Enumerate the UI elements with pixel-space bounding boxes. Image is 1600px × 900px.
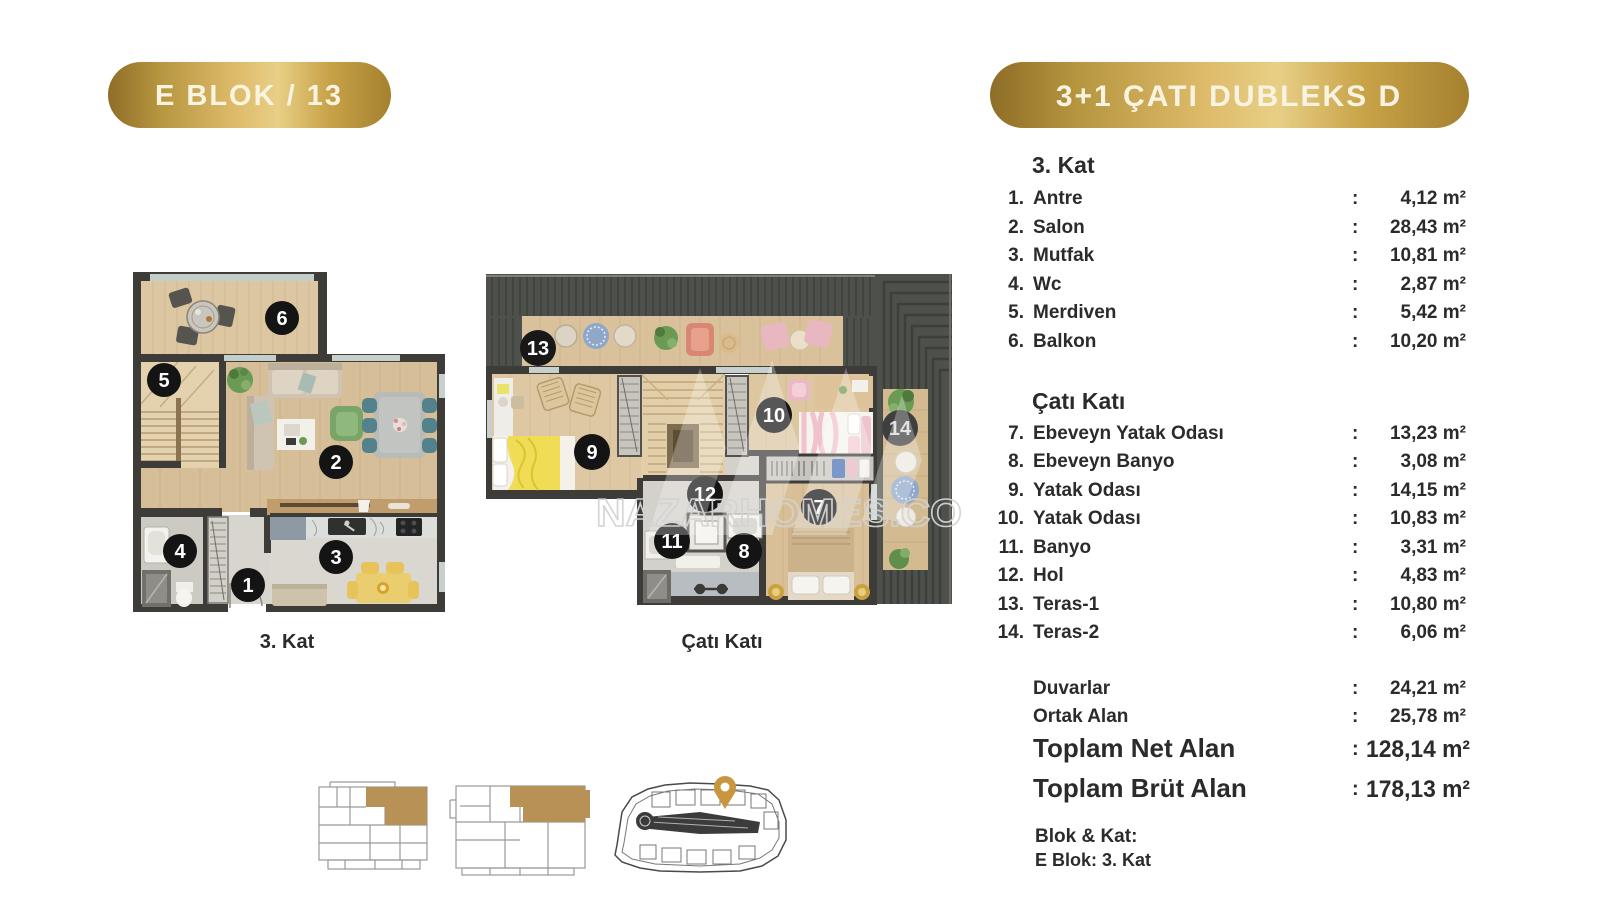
svg-text::: : — [1352, 217, 1358, 238]
svg-text::: : — [1352, 565, 1358, 586]
svg-text::: : — [1352, 594, 1358, 615]
svg-text:Wc: Wc — [1033, 274, 1062, 295]
svg-text:6,06 m²: 6,06 m² — [1401, 622, 1466, 643]
svg-text:3,08 m²: 3,08 m² — [1401, 451, 1466, 472]
svg-text:E BLOK / 13: E BLOK / 13 — [155, 80, 343, 112]
svg-text::: : — [1352, 302, 1358, 323]
svg-text:Teras-1: Teras-1 — [1033, 594, 1100, 615]
svg-text:3: 3 — [330, 547, 341, 569]
svg-text:13,23 m²: 13,23 m² — [1390, 423, 1466, 444]
svg-text:Hol: Hol — [1033, 565, 1064, 586]
svg-text::: : — [1352, 622, 1358, 643]
svg-text::: : — [1352, 508, 1358, 529]
svg-text:3. Kat: 3. Kat — [260, 631, 315, 653]
svg-text:Çatı Katı: Çatı Katı — [681, 631, 762, 653]
svg-text:4: 4 — [174, 541, 186, 563]
svg-text::: : — [1352, 678, 1358, 699]
svg-text:Duvarlar: Duvarlar — [1033, 678, 1111, 699]
svg-text:24,21 m²: 24,21 m² — [1390, 678, 1466, 699]
svg-text:10,20 m²: 10,20 m² — [1390, 331, 1466, 352]
svg-text:3. Kat: 3. Kat — [1032, 152, 1095, 178]
svg-text:4,83 m²: 4,83 m² — [1401, 565, 1466, 586]
svg-text:10.: 10. — [998, 508, 1024, 529]
svg-text:178,13 m²: 178,13 m² — [1366, 776, 1470, 803]
svg-text:Ebeveyn Yatak Odası: Ebeveyn Yatak Odası — [1033, 423, 1224, 444]
svg-text:6: 6 — [276, 308, 287, 330]
svg-text:Merdiven: Merdiven — [1033, 302, 1116, 323]
svg-text::: : — [1352, 423, 1358, 444]
svg-text:Çatı Katı: Çatı Katı — [1032, 388, 1125, 414]
svg-text:1: 1 — [242, 575, 253, 597]
svg-text:9: 9 — [586, 442, 597, 464]
svg-text:4.: 4. — [1008, 274, 1024, 295]
svg-text:Blok & Kat:: Blok & Kat: — [1035, 826, 1137, 847]
svg-text:5,42 m²: 5,42 m² — [1401, 302, 1466, 323]
svg-text:2: 2 — [330, 452, 341, 474]
svg-text:13: 13 — [527, 338, 549, 360]
svg-text:1.: 1. — [1008, 188, 1024, 209]
svg-text:14,15 m²: 14,15 m² — [1390, 480, 1466, 501]
svg-text:5.: 5. — [1008, 302, 1024, 323]
svg-text:11.: 11. — [999, 537, 1024, 558]
svg-text:4,12 m²: 4,12 m² — [1401, 188, 1466, 209]
svg-text::: : — [1352, 188, 1358, 209]
svg-text:25,78 m²: 25,78 m² — [1390, 706, 1466, 727]
svg-text:Balkon: Balkon — [1033, 331, 1096, 352]
svg-text:3+1 ÇATI DUBLEKS D: 3+1 ÇATI DUBLEKS D — [1056, 80, 1402, 113]
svg-text:10,81 m²: 10,81 m² — [1390, 245, 1466, 266]
svg-text:8: 8 — [738, 541, 749, 563]
svg-text:Ebeveyn Banyo: Ebeveyn Banyo — [1033, 451, 1175, 472]
svg-text:Salon: Salon — [1033, 217, 1085, 238]
svg-text:3,31 m²: 3,31 m² — [1401, 537, 1466, 558]
svg-text:Toplam Brüt Alan: Toplam Brüt Alan — [1033, 773, 1247, 803]
svg-text:3.: 3. — [1008, 245, 1024, 266]
svg-text:13.: 13. — [998, 594, 1024, 615]
svg-text::: : — [1352, 451, 1358, 472]
svg-text:2,87 m²: 2,87 m² — [1401, 274, 1466, 295]
svg-text::: : — [1352, 245, 1358, 266]
svg-text:E Blok: 3. Kat: E Blok: 3. Kat — [1035, 850, 1151, 870]
svg-text:10,83 m²: 10,83 m² — [1390, 508, 1466, 529]
svg-text::: : — [1352, 537, 1358, 558]
svg-text:14.: 14. — [998, 622, 1024, 643]
svg-text:5: 5 — [158, 370, 169, 392]
svg-text::: : — [1352, 331, 1358, 352]
svg-text:7.: 7. — [1008, 423, 1024, 444]
svg-text:128,14 m²: 128,14 m² — [1366, 736, 1470, 763]
svg-text:28,43 m²: 28,43 m² — [1390, 217, 1466, 238]
svg-text:Yatak Odası: Yatak Odası — [1033, 508, 1141, 529]
svg-text:2.: 2. — [1008, 217, 1024, 238]
svg-text::: : — [1352, 274, 1358, 295]
svg-text:Banyo: Banyo — [1033, 537, 1091, 558]
svg-text:Ortak Alan: Ortak Alan — [1033, 706, 1128, 727]
svg-text:10,80 m²: 10,80 m² — [1390, 594, 1466, 615]
svg-text:8.: 8. — [1008, 451, 1024, 472]
svg-text:Toplam Net Alan: Toplam Net Alan — [1033, 733, 1235, 763]
svg-text:6.: 6. — [1008, 331, 1024, 352]
svg-text:9.: 9. — [1008, 480, 1024, 501]
svg-text::: : — [1352, 706, 1358, 727]
svg-text::: : — [1352, 480, 1358, 501]
svg-text:Mutfak: Mutfak — [1033, 245, 1095, 266]
svg-text::: : — [1352, 738, 1359, 760]
svg-text:Antre: Antre — [1033, 188, 1083, 209]
svg-text:12.: 12. — [998, 565, 1024, 586]
svg-text::: : — [1352, 778, 1359, 800]
svg-text:NAZARHOMES.CO: NAZARHOMES.CO — [596, 492, 962, 535]
svg-text:Yatak Odası: Yatak Odası — [1033, 480, 1141, 501]
svg-text:Teras-2: Teras-2 — [1033, 622, 1099, 643]
